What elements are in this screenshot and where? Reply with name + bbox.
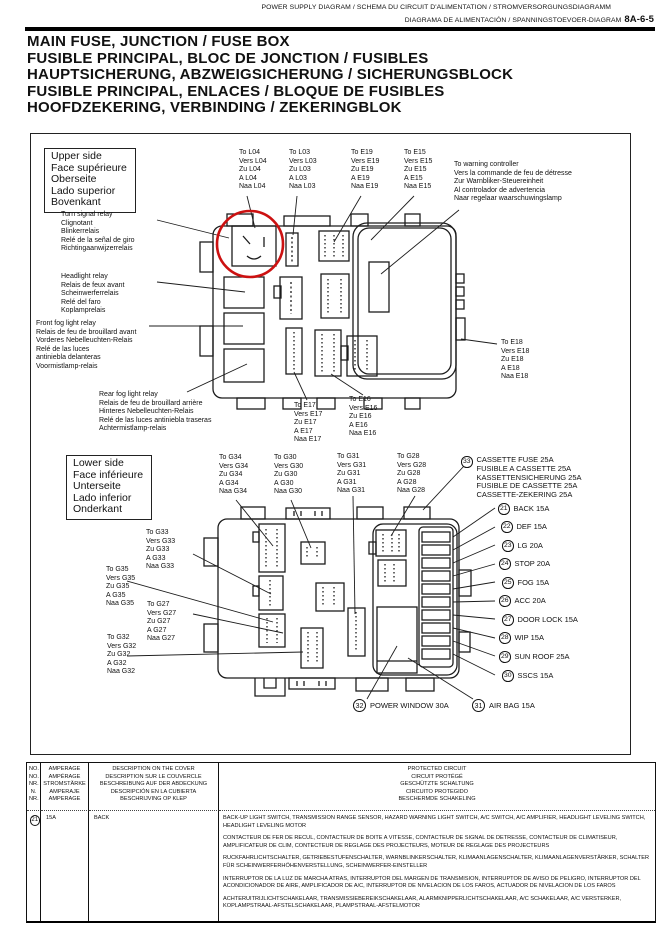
connector-label-g28: To G28 Vers G28 Zu G28 A G28 Naa G28 (397, 453, 426, 496)
amperage-value: 15A (46, 815, 56, 821)
fuse-number-badge: 25 (502, 577, 514, 589)
fuse-item-fog: 25FOG 15A (502, 577, 549, 589)
cassette-fuse-item: 33 CASSETTE FUSE 25A FUSIBLE A CASSETTE … (461, 456, 582, 500)
connector-label-g27: To G27 Vers G27 Zu G27 A G27 Naa G27 (147, 601, 176, 644)
header-line-2: DIAGRAMA DE ALIMENTACIÓN / SPANNINGSTOEV… (0, 14, 654, 25)
connector-label-e15: To E15 Vers E15 Zu E15 A E15 Naa E15 (404, 149, 432, 192)
fuse-item-lg: 23LG 20A (502, 540, 543, 552)
connector-label-g30: To G30 Vers G30 Zu G30 A G30 Naa G30 (274, 454, 303, 497)
fuse-item-sscs: 30SSCS 15A (502, 670, 553, 682)
fuse-number-badge: 26 (499, 595, 511, 607)
header-line-2-text: DIAGRAMA DE ALIMENTACIÓN / SPANNINGSTOEV… (405, 17, 622, 24)
front-fog-relay-label: Front fog light relay Relais de feu de b… (36, 320, 136, 372)
fuse-label: DOOR LOCK 15A (518, 615, 578, 624)
fuse-item-sun-roof: 29SUN ROOF 25A (499, 651, 570, 663)
upper-side-label-box: Upper side Face supérieure Oberseite Lad… (44, 148, 136, 213)
fuse-label: WIP 15A (515, 633, 544, 642)
fuse-label: STOP 20A (515, 559, 551, 568)
diagram-frame: Upper side Face supérieure Oberseite Lad… (30, 133, 631, 755)
table-header-description: DESCRIPTION ON THE COVER DESCRIPTION SUR… (89, 763, 219, 811)
table-cell-no: 21 (27, 811, 41, 921)
protected-circuit-en: BACK-UP LIGHT SWITCH, TRANSMISSION RANGE… (223, 815, 651, 830)
turn-signal-relay-label: Turn signal relay Clignotant Blinkerrela… (61, 211, 135, 254)
header-rule (25, 27, 655, 31)
fuse-number-badge: 30 (502, 670, 514, 682)
fuse-number-badge: 29 (499, 651, 511, 663)
connector-label-l03: To L03 Vers L03 Zu L03 A L03 Naa L03 (289, 149, 317, 192)
rear-fog-relay-label: Rear fog light relay Relais de feu de br… (99, 391, 211, 434)
fuse-label: AIR BAG 15A (489, 701, 535, 710)
fuse-label: FOG 15A (518, 578, 550, 587)
fuse-number-badge: 24 (499, 558, 511, 570)
cassette-fuse-number-badge: 33 (461, 456, 473, 468)
table-header-protected-circuit: PROTECTED CIRCUIT CIRCUIT PROTÉGÉ GESCHÜ… (219, 763, 655, 811)
connector-label-g33: To G33 Vers G33 Zu G33 A G33 Naa G33 (146, 529, 175, 572)
fuse-item-power-window: 32POWER WINDOW 30A (353, 699, 449, 712)
header-line-1: POWER SUPPLY DIAGRAM / SCHEMA DU CIRCUIT… (0, 4, 611, 11)
fuse-number-badge: 21 (498, 503, 510, 515)
fuse-number-badge: 32 (353, 699, 366, 712)
fuse-number-badge: 22 (501, 521, 513, 533)
connector-label-g32: To G32 Vers G32 Zu G32 A G32 Naa G32 (107, 634, 136, 677)
table-cell-amperage: 15A (41, 811, 89, 921)
warning-controller-label: To warning controller Vers la commande d… (454, 161, 572, 204)
table-header-no: NO. NO. NR. N. NR. (27, 763, 41, 811)
page-header: POWER SUPPLY DIAGRAM / SCHEMA DU CIRCUIT… (0, 4, 660, 25)
fuse-number-badge: 23 (502, 540, 514, 552)
fuse-table: NO. NO. NR. N. NR. AMPERAGE AMPÉRAGE STR… (26, 762, 656, 923)
fuse-item-back: 21BACK 15A (498, 503, 549, 515)
table-cell-description: BACK (89, 811, 219, 921)
fuse-item-stop: 24STOP 20A (499, 558, 550, 570)
fuse-number-badge: 27 (502, 614, 514, 626)
fuse-item-def: 22DEF 15A (501, 521, 547, 533)
fuse-item-acc: 26ACC 20A (499, 595, 546, 607)
lower-side-label-box: Lower side Face inférieure Unterseite La… (66, 455, 152, 520)
fuse-item-air-bag: 31AIR BAG 15A (472, 699, 535, 712)
fuse-label: ACC 20A (515, 596, 546, 605)
protected-circuit-fr: CONTACTEUR DE FER DE RECUL, CONTACTEUR D… (223, 835, 651, 850)
page-title: MAIN FUSE, JUNCTION / FUSE BOX FUSIBLE P… (27, 34, 513, 117)
connector-label-g34: To G34 Vers G34 Zu G34 A G34 Naa G34 (219, 454, 248, 497)
table-cell-protected-circuit: BACK-UP LIGHT SWITCH, TRANSMISSION RANGE… (219, 811, 655, 921)
protected-circuit-de: RUCKFAHRLICHTSCHALTER, GETRIEBESTUFENSCH… (223, 855, 651, 870)
table-header-amperage: AMPERAGE AMPÉRAGE STROMSTÄRKE AMPERAJE A… (41, 763, 89, 811)
fuse-label: LG 20A (518, 541, 543, 550)
fuse-label: SUN ROOF 25A (515, 652, 570, 661)
protected-circuit-nl: ACHTERUITRIJLICHTSCHAKELAAR, TRANSMISSIE… (223, 896, 651, 911)
fuse-label: POWER WINDOW 30A (370, 701, 449, 710)
connector-label-e18: To E18 Vers E18 Zu E18 A E18 Naa E18 (501, 339, 529, 382)
connector-label-e19: To E19 Vers E19 Zu E19 A E19 Naa E19 (351, 149, 379, 192)
connector-label-g35: To G35 Vers G35 Zu G35 A G35 Naa G35 (106, 566, 135, 609)
headlight-relay-label: Headlight relay Relais de feux avant Sch… (61, 273, 124, 316)
manual-page: POWER SUPPLY DIAGRAM / SCHEMA DU CIRCUIT… (0, 0, 660, 926)
connector-label-e16: To E16 Vers E16 Zu E16 A E16 Naa E16 (349, 396, 377, 439)
fuse-label: DEF 15A (517, 522, 547, 531)
connector-label-g31: To G31 Vers G31 Zu G31 A G31 Naa G31 (337, 453, 366, 496)
fuse-item-wip: 28WIP 15A (499, 632, 544, 644)
fuse-number-badge: 28 (499, 632, 511, 644)
table-fuse-number-badge: 21 (30, 815, 41, 826)
fuse-label: SSCS 15A (518, 671, 554, 680)
connector-label-e17: To E17 Vers E17 Zu E17 A E17 Naa E17 (294, 402, 322, 445)
protected-circuit-es: INTERRUPTOR DE LA LUZ DE MARCHA ATRAS, I… (223, 876, 651, 891)
fuse-item-door-lock: 27DOOR LOCK 15A (502, 614, 578, 626)
connector-label-l04: To L04 Vers L04 Zu L04 A L04 Naa L04 (239, 149, 267, 192)
fuse-label: BACK 15A (514, 504, 550, 513)
page-number: 8A-6-5 (624, 14, 654, 25)
fuse-number-badge: 31 (472, 699, 485, 712)
description-value: BACK (94, 815, 109, 821)
cassette-fuse-label: CASSETTE FUSE 25A FUSIBLE A CASSETTE 25A… (477, 456, 582, 500)
